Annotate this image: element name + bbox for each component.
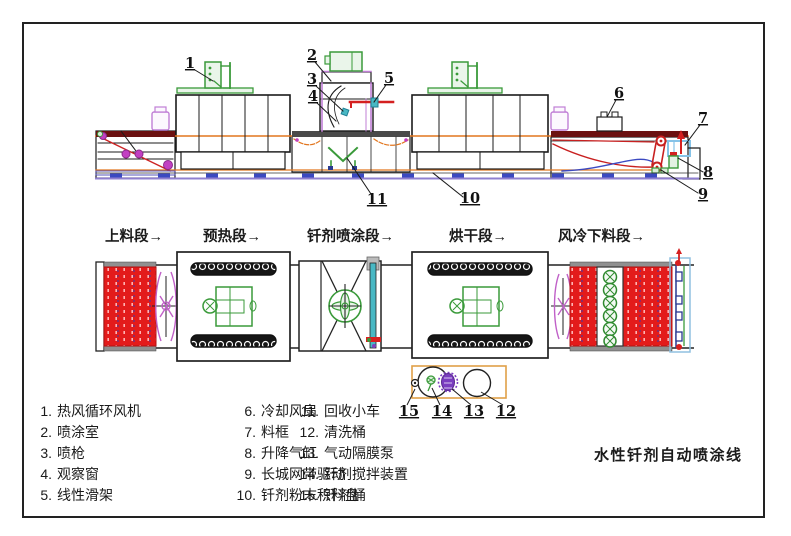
section-label-cooling: 风冷下料段→ [558, 227, 645, 245]
callout-9: 9 [698, 186, 708, 203]
cooling-fan-box-icon [597, 117, 622, 131]
legend-label: 料框 [261, 424, 289, 440]
callout-1: 1 [185, 55, 195, 72]
cooling-top-bar [551, 131, 688, 137]
legend-num: 9. [244, 466, 256, 482]
legend-num: 12. [300, 424, 319, 440]
heater-bar-icon [428, 335, 532, 347]
drive-dot-icon [98, 132, 103, 137]
legend-label: 观察窗 [57, 466, 99, 482]
plan-spray-section [299, 257, 381, 351]
callout-3: 3 [307, 71, 317, 88]
legend-num: 13. [300, 445, 319, 461]
heater-bar-icon [428, 263, 532, 275]
callout-6: 6 [614, 85, 624, 102]
legend-label: 钎剂桶 [324, 487, 366, 503]
plan-cooling-belt [570, 262, 672, 351]
legend-num: 10. [237, 487, 256, 503]
plan-preheat-section [177, 252, 290, 361]
section-label-drying: 烘干段→ [449, 227, 507, 245]
legend-num: 7. [244, 424, 256, 440]
legend-num: 15. [300, 487, 319, 503]
callout-4: 4 [308, 88, 318, 105]
legend-label: 线性滑架 [57, 487, 113, 503]
drawing-canvas: 1 2 3 4 5 6 7 8 9 10 11 上料段→ 预热段→ 钎剂喷涂段→… [0, 0, 791, 536]
plan-linear-slide [370, 263, 376, 348]
callout-11: 11 [367, 191, 387, 208]
lift-cylinder-icon [669, 156, 678, 168]
callout-10: 10 [460, 190, 480, 207]
callout-14: 14 [432, 403, 452, 420]
callout-2: 2 [307, 47, 317, 64]
plan-loading-belt [104, 262, 156, 351]
legend-num: 5. [40, 487, 52, 503]
legend-label: 钎剂搅拌装置 [324, 466, 408, 482]
legend-label: 气动隔膜泵 [324, 445, 394, 461]
plan-left-end-cap [96, 262, 104, 351]
heater-bar-icon [191, 263, 276, 275]
legend-label: 喷涂室 [57, 424, 99, 440]
legend-label: 喷枪 [57, 445, 85, 461]
roller-icon [122, 150, 130, 158]
legend-num: 1. [40, 403, 52, 419]
legend-label: 清洗桶 [324, 424, 366, 440]
legend-num: 14. [300, 466, 319, 482]
callout-13: 13 [464, 403, 484, 420]
section-label-preheat: 预热段→ [203, 227, 261, 245]
spray-table-top-bar [292, 131, 410, 137]
booth-top-fan-icon [330, 52, 362, 71]
legend-label: 热风循环风机 [57, 403, 141, 419]
loading-top-bar [96, 131, 175, 137]
roller-icon [164, 161, 173, 170]
slide-valve-icon [371, 98, 378, 107]
callout-7: 7 [698, 110, 708, 127]
jar-icon [551, 107, 568, 130]
callout-15: 15 [399, 403, 419, 420]
legend-num: 11. [301, 403, 319, 419]
preheat-chamber [176, 95, 290, 152]
roller-icon [135, 150, 143, 158]
spray-gun-icon [341, 108, 349, 116]
legend-num: 2. [40, 424, 52, 440]
legend-label: 回收小车 [324, 403, 380, 419]
callout-8: 8 [703, 164, 713, 181]
cleaning-barrel-icon [464, 370, 491, 397]
section-label-spray: 钎剂喷涂段→ [307, 227, 394, 245]
callout-12: 12 [496, 403, 516, 420]
heater-bar-icon [191, 335, 276, 347]
plan-drying-section [412, 252, 548, 358]
drying-chamber [412, 95, 548, 152]
drawing-title: 水性钎剂自动喷涂线 [594, 446, 743, 464]
callout-5: 5 [384, 70, 394, 87]
legend-num: 6. [244, 403, 256, 419]
engineering-drawing: 1 2 3 4 5 6 7 8 9 10 11 上料段→ 预热段→ 钎剂喷涂段→… [0, 0, 791, 536]
legend-num: 8. [244, 445, 256, 461]
legend-num: 3. [40, 445, 52, 461]
section-label-loading: 上料段→ [105, 227, 163, 245]
legend-num: 4. [40, 466, 52, 482]
jar-icon [152, 107, 169, 130]
